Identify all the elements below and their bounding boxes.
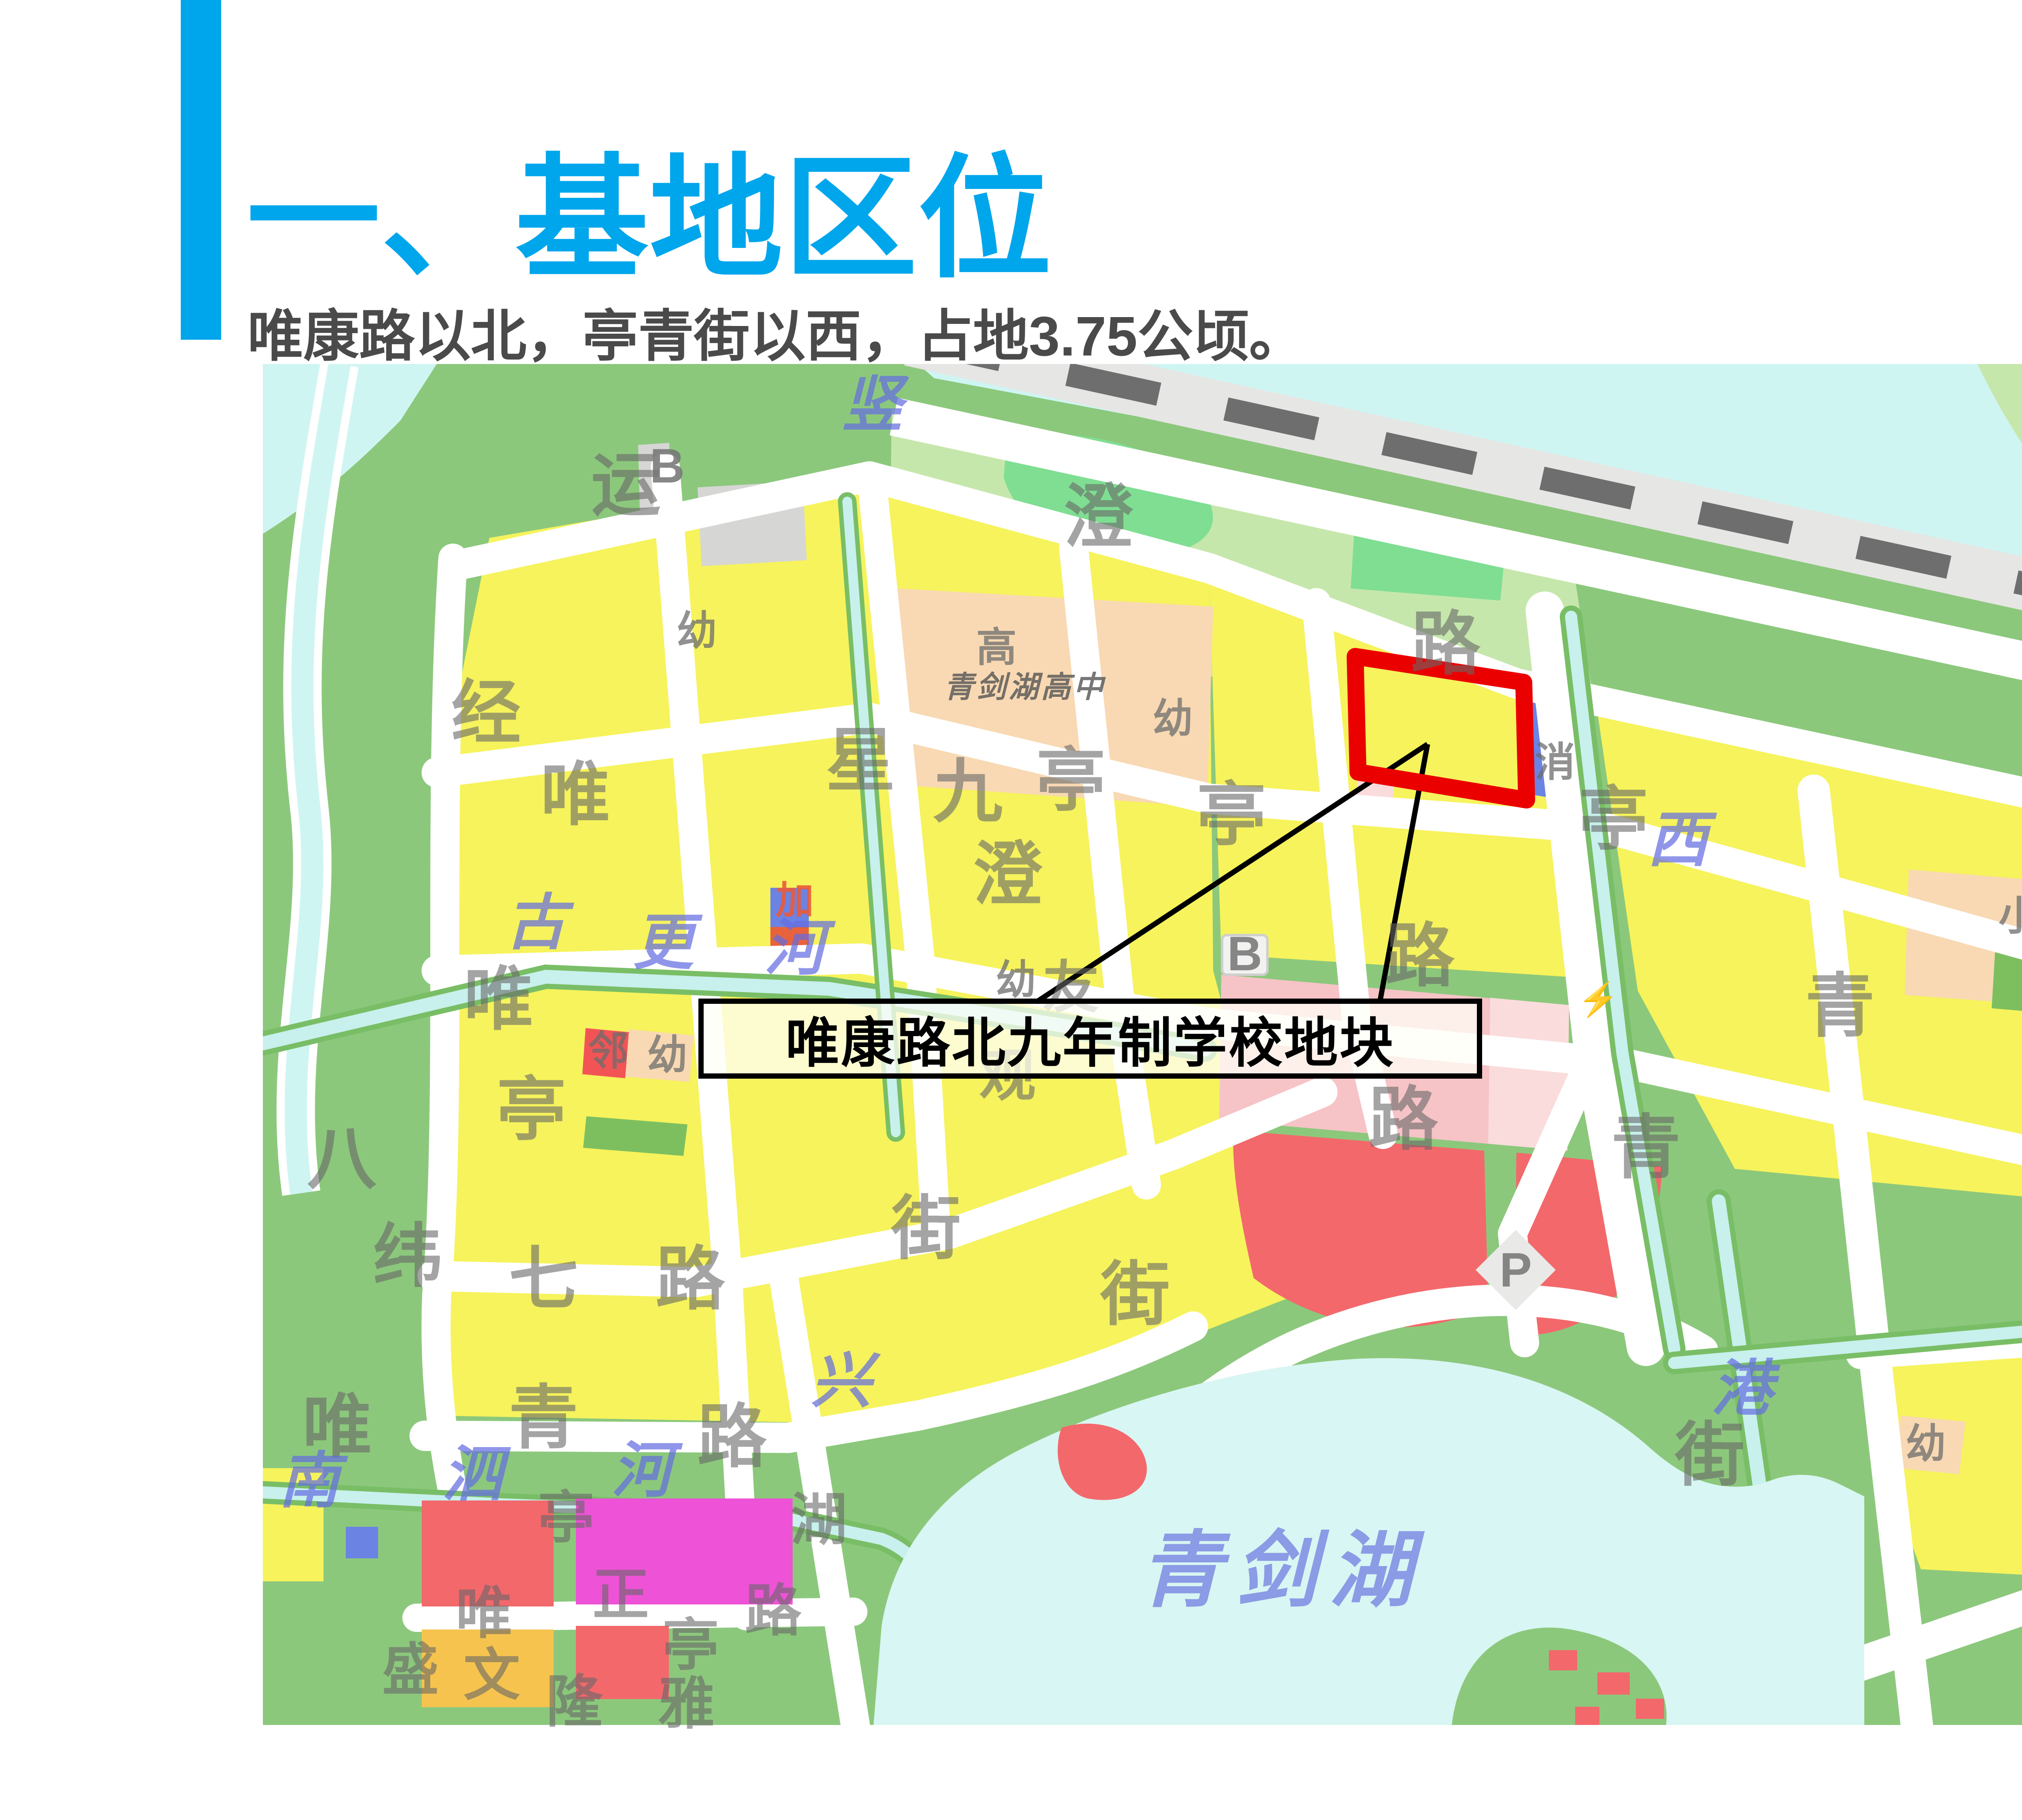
parcel-peach-se bbox=[1897, 1416, 1965, 1474]
location-map: 竖运B澄路幼经高青剑湖高中幼星唯九亭亭澄路消亭西古更加河唯邻幼亭幼友观B路小幼邻… bbox=[263, 364, 2022, 1725]
parcel-red-zhenglong bbox=[576, 1626, 669, 1699]
parcel-peach-west bbox=[625, 1029, 694, 1082]
parcel-orange-shengwen bbox=[422, 1630, 554, 1707]
site-callout: 唯康路北九年制学校地块 bbox=[698, 999, 1482, 1079]
parcel-blue-small-sw bbox=[346, 1527, 378, 1558]
marker-b-base bbox=[1222, 935, 1267, 975]
slide: { "slide": { "title": "一、基地区位", "subtitl… bbox=[0, 0, 2022, 1820]
page-subtitle: 唯康路以北，亭青街以西，占地3.75公顷。 bbox=[247, 303, 1946, 370]
parcel-red-sw bbox=[422, 1500, 554, 1606]
parcel-red-west bbox=[582, 1028, 629, 1078]
parcel-magenta bbox=[576, 1498, 793, 1604]
page-title: 一、基地区位 bbox=[247, 142, 1703, 296]
accent-bar bbox=[181, 0, 221, 340]
